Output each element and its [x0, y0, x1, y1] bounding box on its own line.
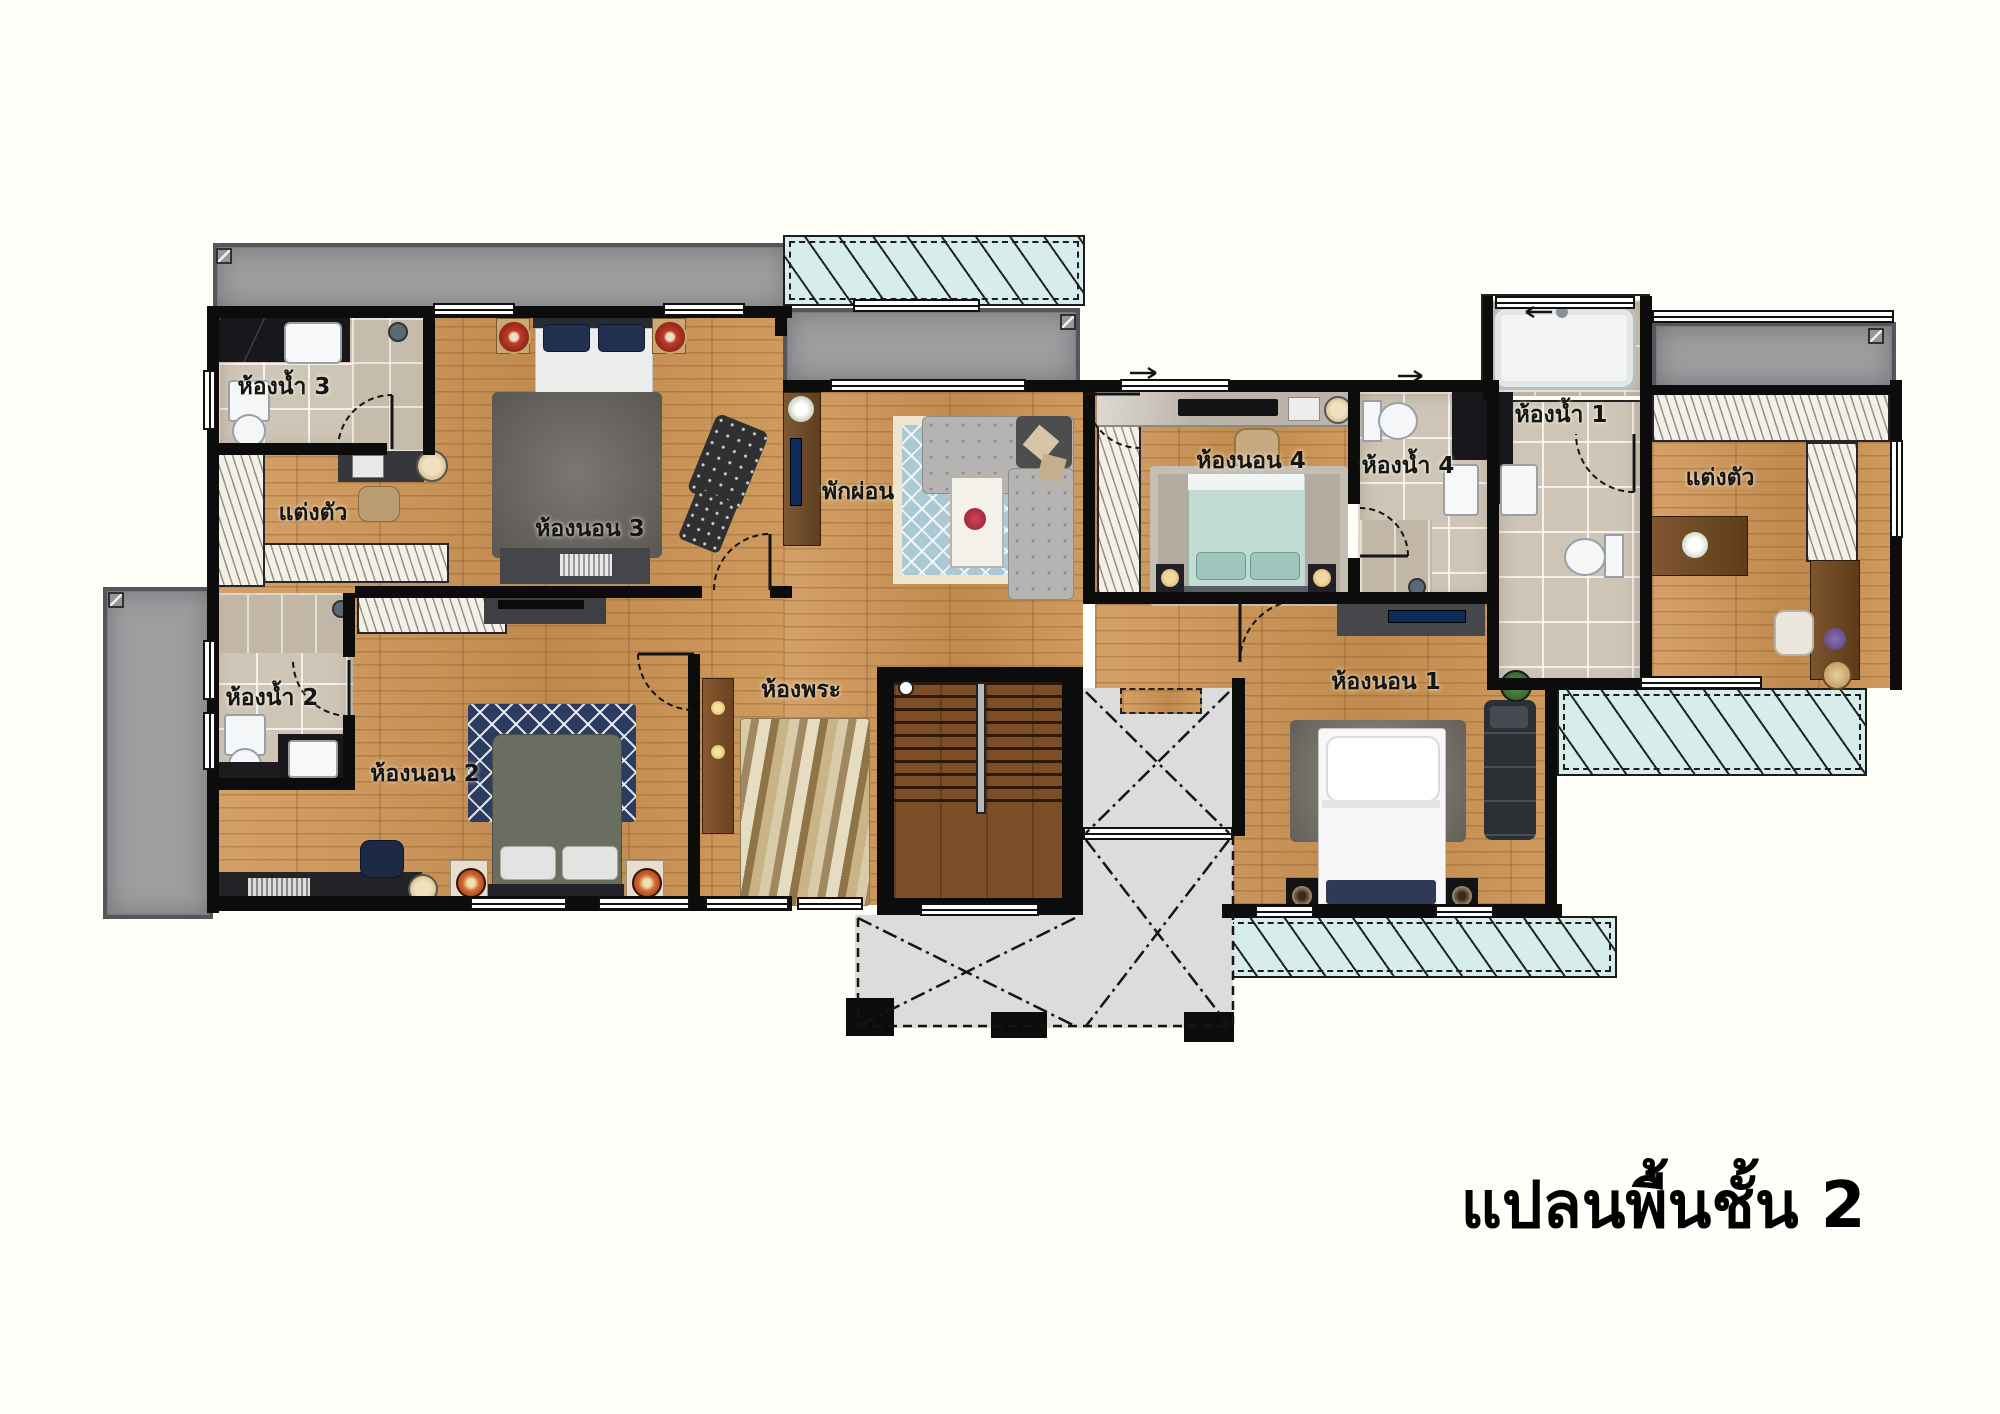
- room-label-prayer-room: ห้องพระ: [761, 672, 841, 708]
- room-label-bathroom4: ห้องน้ำ 4: [1362, 448, 1455, 484]
- room-label-bedroom4: ห้องนอน 4: [1196, 443, 1305, 479]
- room-label-bedroom3: ห้องนอน 3: [535, 511, 644, 547]
- room-label-lounge: พักผ่อน: [822, 474, 894, 510]
- room-label-bathroom3: ห้องน้ำ 3: [238, 369, 331, 405]
- room-label-bathroom2: ห้องน้ำ 2: [226, 680, 319, 716]
- room-label-dressing-right: แต่งตัว: [1686, 460, 1755, 496]
- room-label-bathroom1: ห้องน้ำ 1: [1515, 397, 1608, 433]
- room-label-dressing-left: แต่งตัว: [279, 495, 348, 531]
- plan-title: แปลนพื้นชั้น 2: [1461, 1154, 1866, 1256]
- room-label-bedroom2: ห้องนอน 2: [370, 756, 479, 792]
- floor-plan: ห้องน้ำ 3แต่งตัวห้องนอน 3พักผ่อนห้องนอน …: [0, 0, 2000, 1414]
- room-label-bedroom1: ห้องนอน 1: [1331, 664, 1440, 700]
